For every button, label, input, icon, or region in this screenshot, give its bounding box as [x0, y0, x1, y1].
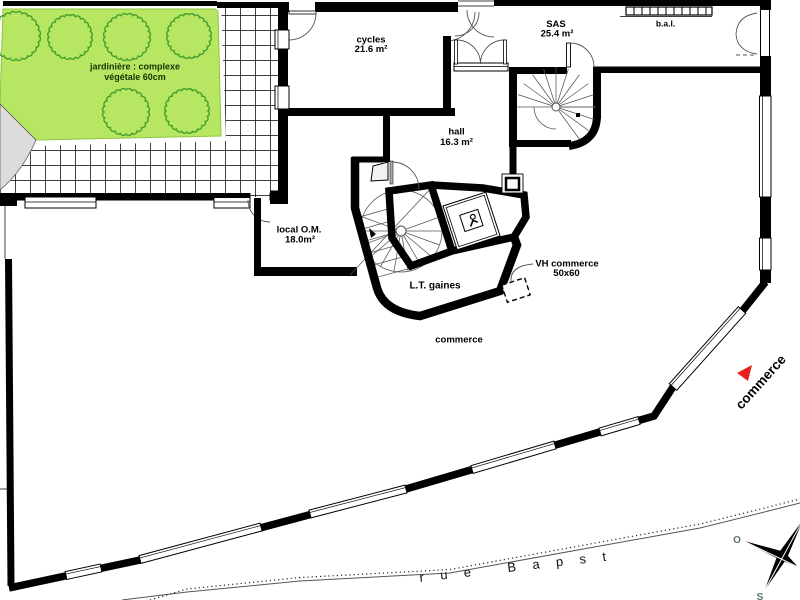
- svg-text:16.3 m²: 16.3 m²: [440, 137, 473, 148]
- svg-text:commerce: commerce: [435, 335, 483, 346]
- svg-text:hall: hall: [448, 127, 464, 138]
- svg-text:25.4 m²: 25.4 m²: [541, 29, 574, 40]
- svg-text:végétale 60cm: végétale 60cm: [104, 72, 166, 82]
- svg-text:jardinière : complexe: jardinière : complexe: [89, 62, 180, 72]
- svg-text:21.6 m²: 21.6 m²: [355, 44, 388, 55]
- svg-text:18.0m²: 18.0m²: [285, 235, 315, 246]
- svg-text:S: S: [757, 592, 764, 600]
- svg-text:L.T. gaines: L.T. gaines: [409, 281, 461, 292]
- svg-text:50x60: 50x60: [553, 268, 579, 279]
- svg-text:O: O: [733, 535, 741, 546]
- svg-text:b.a.l.: b.a.l.: [656, 19, 675, 29]
